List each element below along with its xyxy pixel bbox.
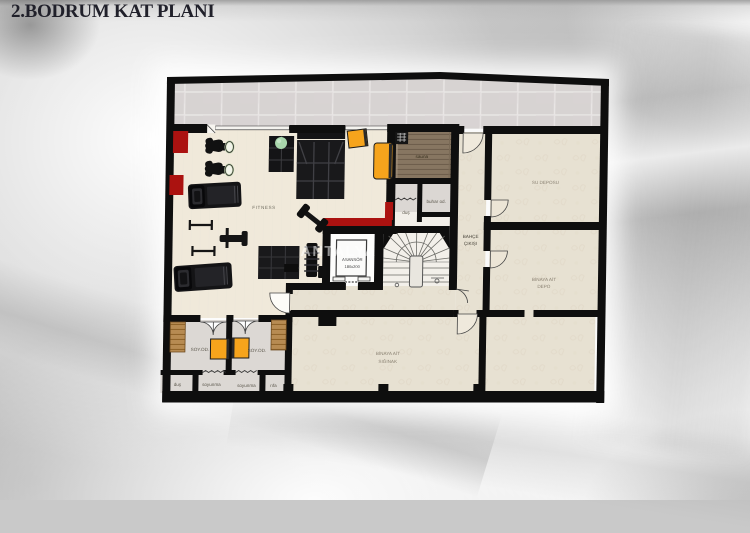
svg-text:duş: duş <box>402 210 410 215</box>
svg-text:BİNAYA AİT: BİNAYA AİT <box>532 276 556 282</box>
svg-text:soyunma: soyunma <box>202 382 221 387</box>
svg-text:BİNAYA AİT: BİNAYA AİT <box>376 350 400 356</box>
svg-text:duş: duş <box>174 382 182 387</box>
svg-text:SIĞINAK: SIĞINAK <box>378 358 398 364</box>
svg-text:buhar od.: buhar od. <box>426 199 445 204</box>
svg-text:180x200: 180x200 <box>344 264 360 269</box>
svg-text:BAHÇE: BAHÇE <box>463 234 479 239</box>
svg-text:soyunma: soyunma <box>237 383 256 388</box>
svg-text:ANTALYA: ANTALYA <box>300 244 376 260</box>
svg-text:FITNESS: FITNESS <box>252 205 276 210</box>
svg-text:SOY.OD.: SOY.OD. <box>248 348 267 353</box>
svg-text:SU DEPOSU: SU DEPOSU <box>532 180 559 185</box>
svg-text:rıfa: rıfa <box>270 383 277 388</box>
svg-text:DEPO: DEPO <box>537 284 551 289</box>
svg-text:ÇIKIŞI: ÇIKIŞI <box>464 241 477 246</box>
svg-text:sauna: sauna <box>416 154 429 159</box>
svg-text:SOY.OD.: SOY.OD. <box>191 347 210 352</box>
